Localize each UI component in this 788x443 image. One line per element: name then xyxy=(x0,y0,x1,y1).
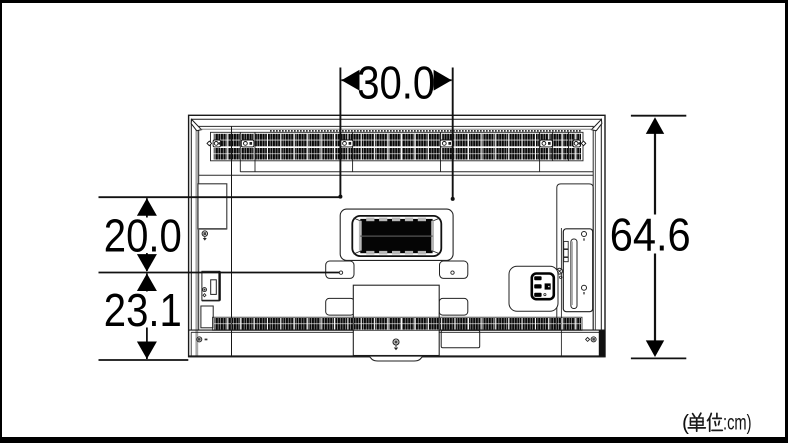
svg-text:(: ( xyxy=(682,412,689,435)
svg-text::cm): :cm) xyxy=(723,412,752,435)
svg-text:64.6: 64.6 xyxy=(610,209,691,261)
svg-text:20.0: 20.0 xyxy=(104,210,182,262)
svg-text:30.0: 30.0 xyxy=(357,57,435,109)
svg-text:23.1: 23.1 xyxy=(104,284,182,336)
